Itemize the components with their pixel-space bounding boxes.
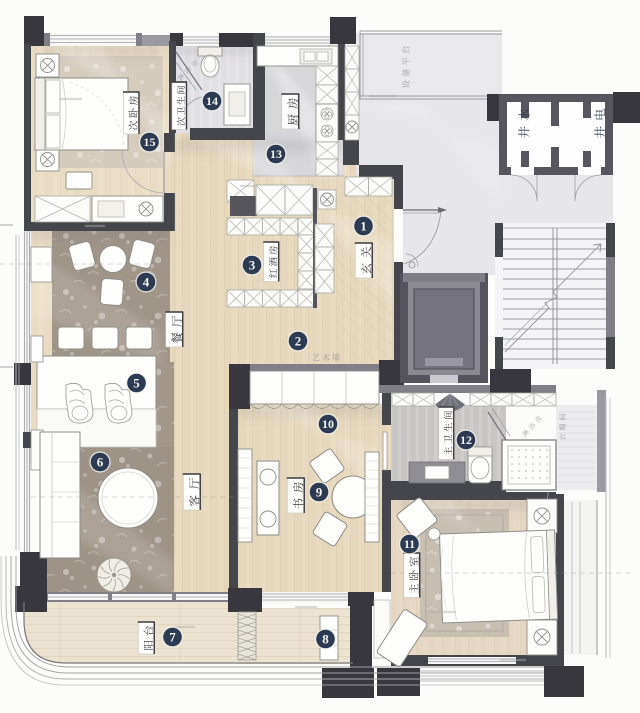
- svg-text:3: 3: [249, 258, 256, 273]
- svg-text:4: 4: [143, 275, 150, 290]
- svg-text:10: 10: [322, 417, 334, 431]
- svg-text:15: 15: [144, 135, 156, 149]
- svg-text:9: 9: [316, 485, 323, 500]
- svg-text:11: 11: [404, 537, 415, 551]
- svg-text:5: 5: [133, 376, 140, 391]
- svg-text:7: 7: [169, 630, 176, 645]
- svg-text:8: 8: [322, 632, 329, 647]
- svg-text:12: 12: [460, 433, 472, 447]
- svg-text:1: 1: [360, 219, 367, 234]
- svg-text:13: 13: [270, 147, 282, 161]
- svg-text:2: 2: [295, 334, 302, 349]
- svg-text:6: 6: [97, 455, 104, 470]
- svg-text:14: 14: [206, 94, 218, 108]
